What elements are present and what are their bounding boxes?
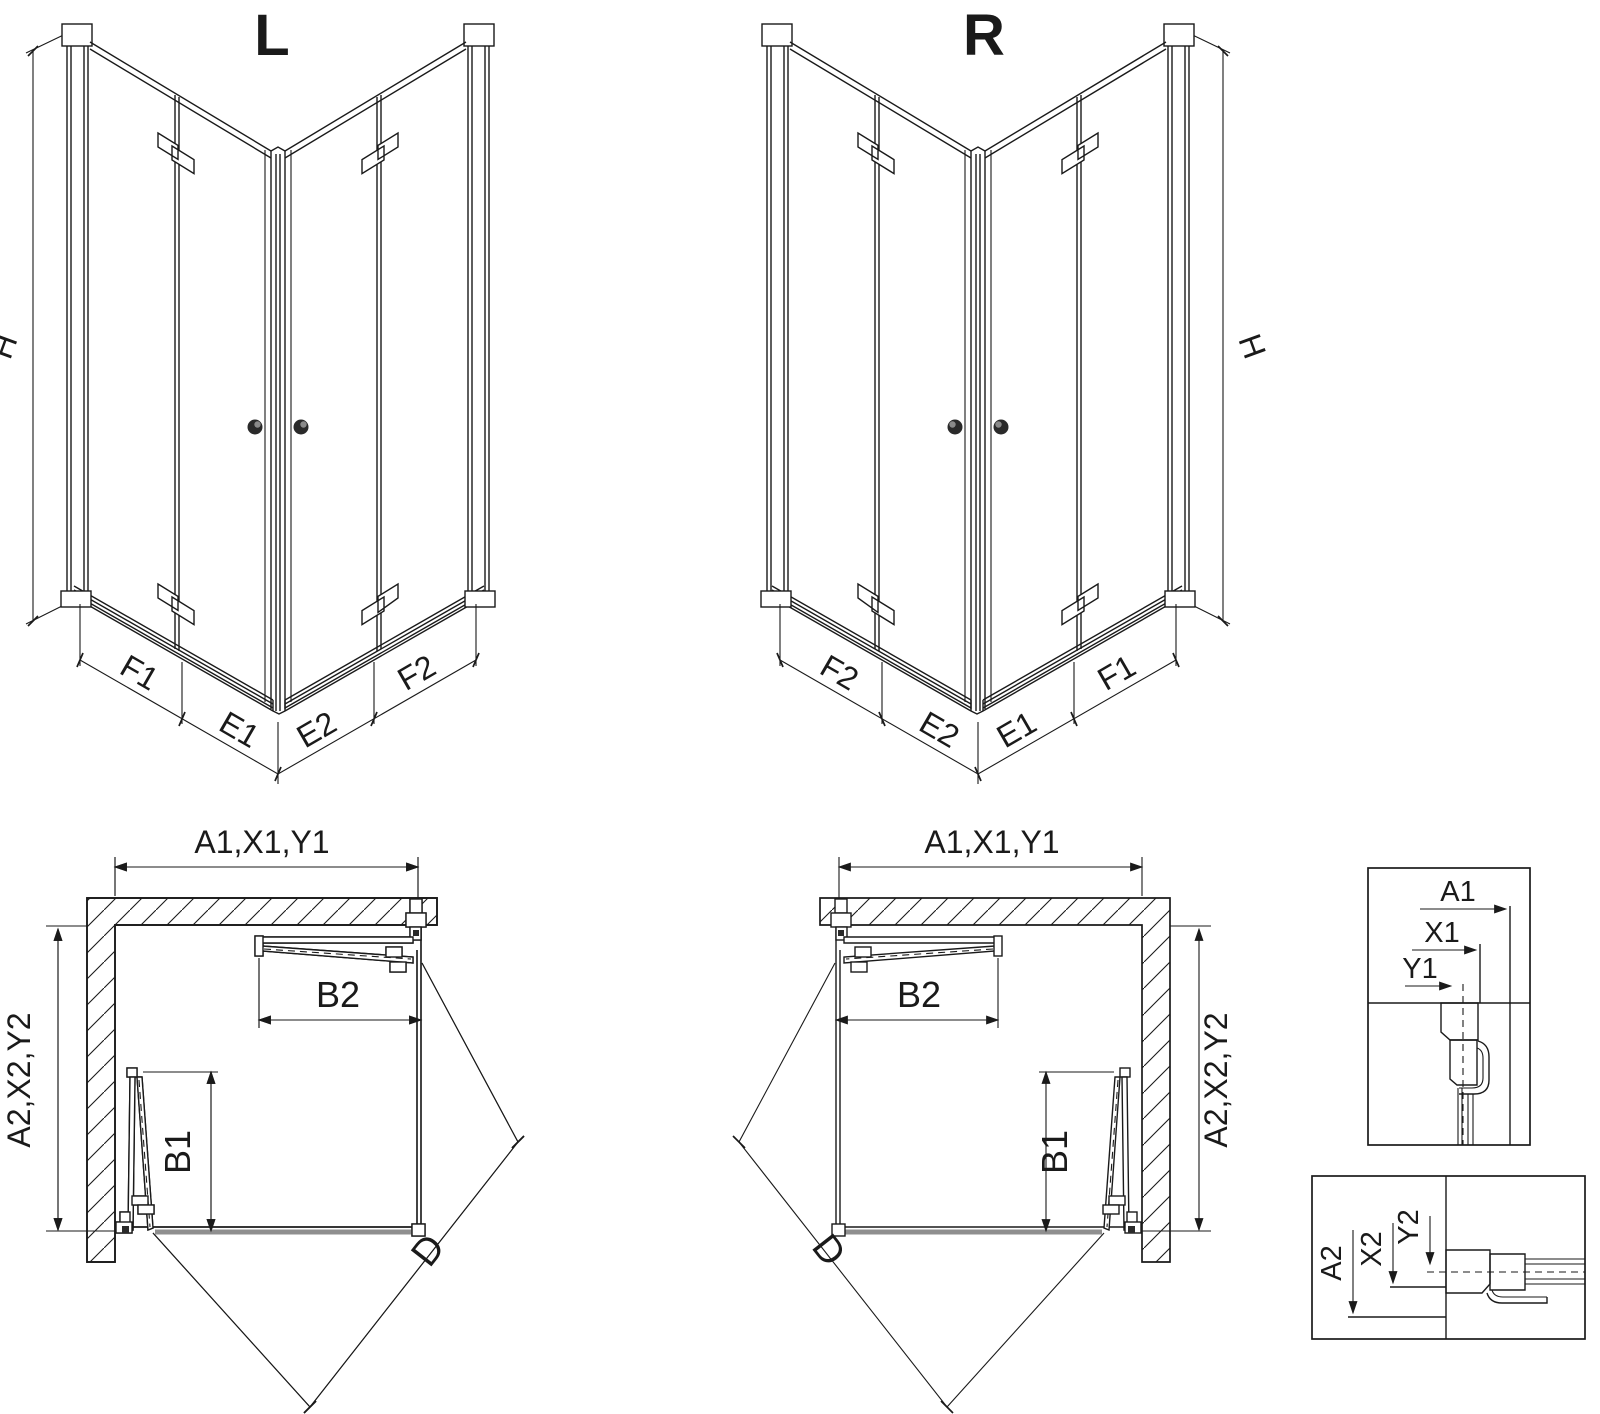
shower-enclosure-drawing: L H F1 E1 E2 F2 R H F2 E2 E1 F1 (0, 0, 1600, 1414)
technical-drawing-page: L H F1 E1 E2 F2 R H F2 E2 E1 F1 (0, 0, 1600, 1414)
width-dim-label: A1,X1,Y1 (924, 824, 1059, 860)
detail-label-a1: A1 (1440, 876, 1475, 908)
left-variant-isometric-view: L H F1 E1 E2 F2 (0, 3, 442, 755)
dim-label-f1: F1 (1091, 648, 1141, 698)
variant-title-left: L (254, 3, 289, 68)
wall-profile-detail-bottom: A2 X2 Y2 (1312, 1176, 1585, 1339)
detail-label-a2: A2 (1316, 1245, 1348, 1280)
detail-label-y2: Y2 (1393, 1209, 1425, 1244)
dim-label-e1: E1 (991, 704, 1043, 755)
dim-label-e1: E1 (214, 704, 266, 755)
door-b1-label: B1 (1034, 1130, 1075, 1174)
dim-label-e2: E2 (291, 704, 343, 755)
wall-profile-section (1446, 1250, 1585, 1303)
right-variant-plan-view: A1,X1,Y1 A2,X2,Y2 B2 B1 D (733, 824, 1234, 1413)
dim-label-f2: F2 (391, 648, 441, 698)
door-b2-label: B2 (316, 974, 360, 1015)
dim-label-e2: E2 (914, 704, 966, 755)
depth-dim-label: A2,X2,Y2 (1198, 1012, 1234, 1147)
hinge-plates (158, 133, 398, 625)
dim-label-f1: F1 (114, 648, 164, 698)
dim-label-f2: F2 (814, 648, 864, 698)
door-b1-label: B1 (157, 1130, 198, 1174)
width-dim-label: A1,X1,Y1 (194, 824, 329, 860)
depth-dim-label: A2,X2,Y2 (1, 1012, 37, 1147)
detail-label-x2: X2 (1356, 1231, 1388, 1266)
door-b2-label: B2 (897, 974, 941, 1015)
height-dim-label: H (0, 329, 25, 363)
height-dim-label: H (1231, 329, 1273, 363)
detail-label-x1: X1 (1424, 917, 1459, 949)
detail-label-y1: Y1 (1402, 953, 1437, 985)
right-variant-isometric-view: R H F2 E2 E1 F1 (761, 3, 1273, 784)
variant-title-right: R (963, 3, 1005, 68)
plan-view-linework-mirrored (733, 857, 1211, 1413)
door-knob (248, 420, 309, 435)
wall-profile-detail-top: A1 X1 Y1 (1368, 868, 1530, 1145)
wall-profile-section (1441, 1003, 1489, 1145)
left-variant-plan-view: A1,X1,Y1 A2,X2,Y2 B2 B1 D (1, 824, 524, 1413)
